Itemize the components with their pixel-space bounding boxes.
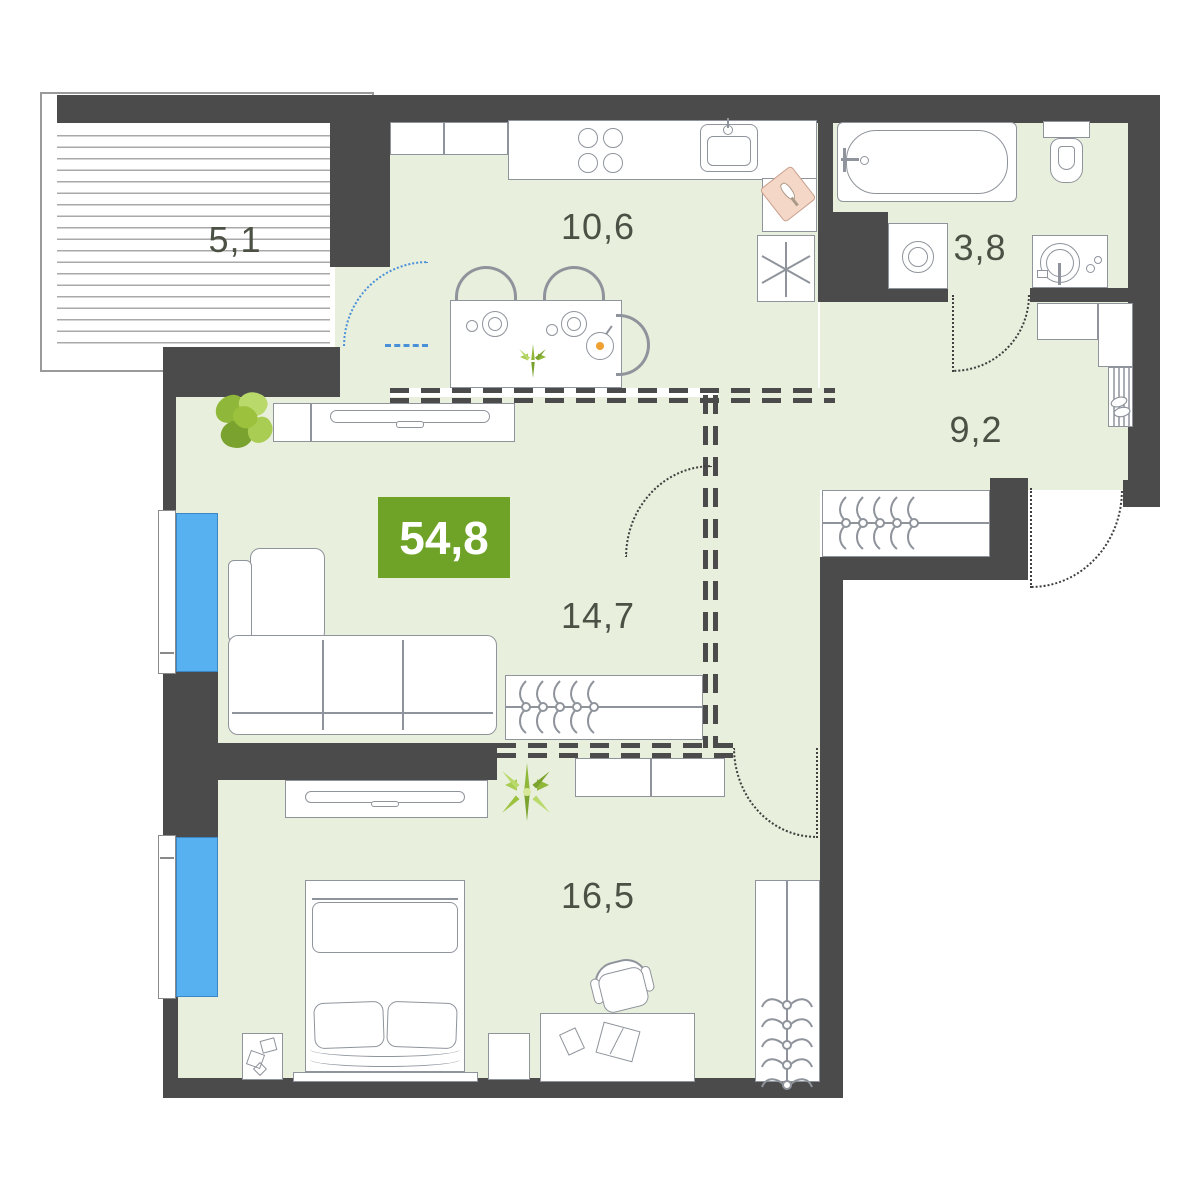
window-frame-line: [160, 857, 174, 859]
wall-below-washbasin: [1030, 288, 1128, 302]
hall-cabinet-b: [1098, 303, 1133, 367]
bathtub-faucet: [843, 148, 846, 172]
cup: [466, 320, 478, 332]
vent-star-icon: [758, 236, 816, 303]
cabinet-divider: [443, 122, 445, 155]
plate: [567, 317, 581, 331]
wall-left-upper: [163, 347, 176, 513]
bed-sheet-line: [312, 898, 458, 900]
kitchen-sink-basin: [707, 136, 751, 166]
sofa-body: [228, 635, 497, 735]
room-area-label-balcony: 5,1: [208, 219, 261, 261]
partition-living-bedroom-1: [497, 743, 733, 748]
stove-burner: [578, 153, 598, 173]
plate: [488, 317, 502, 331]
bathtub-drain: [860, 156, 869, 165]
vent-shaft: [757, 235, 815, 302]
cup: [546, 324, 558, 336]
balcony-door-threshold: [385, 344, 428, 347]
pan-contents: [596, 342, 604, 350]
shoe-rack: [1108, 367, 1133, 427]
wall-balcony-right: [330, 95, 390, 267]
living-hangers-icon: [512, 679, 602, 735]
stove-burner: [603, 128, 623, 148]
sofa-seam: [402, 640, 404, 730]
knife-handle: [790, 197, 799, 207]
sofa-seam: [322, 640, 324, 730]
washbasin-tap: [1058, 263, 1061, 285]
hall-cabinet-a: [1037, 303, 1098, 340]
bath-accessory: [1086, 264, 1095, 273]
floor-plant-icon: [496, 763, 558, 821]
window-frame-line: [160, 652, 174, 654]
room-area-label-living: 14,7: [561, 595, 635, 637]
sofa-seam: [232, 712, 493, 714]
bedroom-hangers-icon: [760, 995, 816, 1095]
window-frame-bedroom: [158, 835, 176, 999]
room-area-label-bedroom: 16,5: [561, 875, 635, 917]
room-area-label-bathroom: 3,8: [953, 227, 1006, 269]
toilet-bowl-inner: [1058, 146, 1075, 170]
bed-footboard: [293, 1072, 478, 1082]
window-living: [176, 513, 218, 672]
partition-kitchen-living-1: [390, 388, 835, 393]
room-area-label-kitchen: 10,6: [561, 206, 635, 248]
window-bedroom: [176, 837, 218, 997]
blanket-fold: [310, 1052, 460, 1067]
wall-bedroom-right: [820, 557, 843, 1098]
low-cabinet-divider: [650, 758, 652, 797]
partition-living-hall-1: [703, 395, 708, 748]
paper: [559, 1027, 585, 1055]
bedroom-tv-base: [371, 801, 399, 807]
book: [596, 1022, 641, 1063]
sofa-back: [228, 560, 252, 642]
entrance-door-arc: [1031, 490, 1123, 588]
wall-bedroom-bottom: [163, 1078, 843, 1098]
bed-duvet: [312, 902, 458, 953]
total-area-value: 54,8: [399, 511, 489, 565]
table-plant-icon: [516, 344, 550, 378]
bath-accessory: [1037, 270, 1048, 278]
stove-burner: [578, 128, 598, 148]
bedroom-door-leaf: [816, 748, 818, 838]
washer-drum-inner: [908, 247, 928, 267]
decor-table: [242, 1033, 283, 1080]
decor-item: [260, 1037, 278, 1053]
tv-base: [396, 421, 424, 428]
bathtub-inner: [846, 130, 1008, 194]
wall-right-outer: [1128, 95, 1160, 507]
wall-below-washer: [833, 288, 948, 302]
total-area-badge: 54,8: [378, 497, 510, 578]
wall-living-top: [163, 347, 340, 397]
stove-burner: [603, 153, 623, 173]
shoe-rack-bars: [1109, 368, 1134, 428]
window-frame-living: [158, 510, 176, 674]
bath-accessory: [1094, 256, 1102, 264]
wall-living-bedroom-divider: [163, 743, 497, 780]
toilet-tank: [1043, 121, 1090, 138]
wall-top: [57, 95, 1160, 123]
desk: [540, 1013, 695, 1082]
kitchen-faucet-spout: [727, 118, 729, 128]
partition-living-hall-2: [713, 395, 718, 748]
tv-stand-divider: [310, 403, 312, 442]
nightstand: [488, 1033, 530, 1080]
floor-plan: 54,8: [0, 0, 1200, 1200]
hall-hangers-icon: [830, 495, 920, 551]
kitchen-counter: [508, 120, 817, 180]
room-area-label-hallway: 9,2: [949, 409, 1002, 451]
sofa-chaise: [250, 548, 325, 642]
wall-hall-bottom-block: [990, 478, 1028, 580]
balcony-decking: [57, 125, 330, 347]
kitchen-cabinet-upper: [390, 122, 508, 155]
corner-plant-icon: [213, 392, 279, 462]
